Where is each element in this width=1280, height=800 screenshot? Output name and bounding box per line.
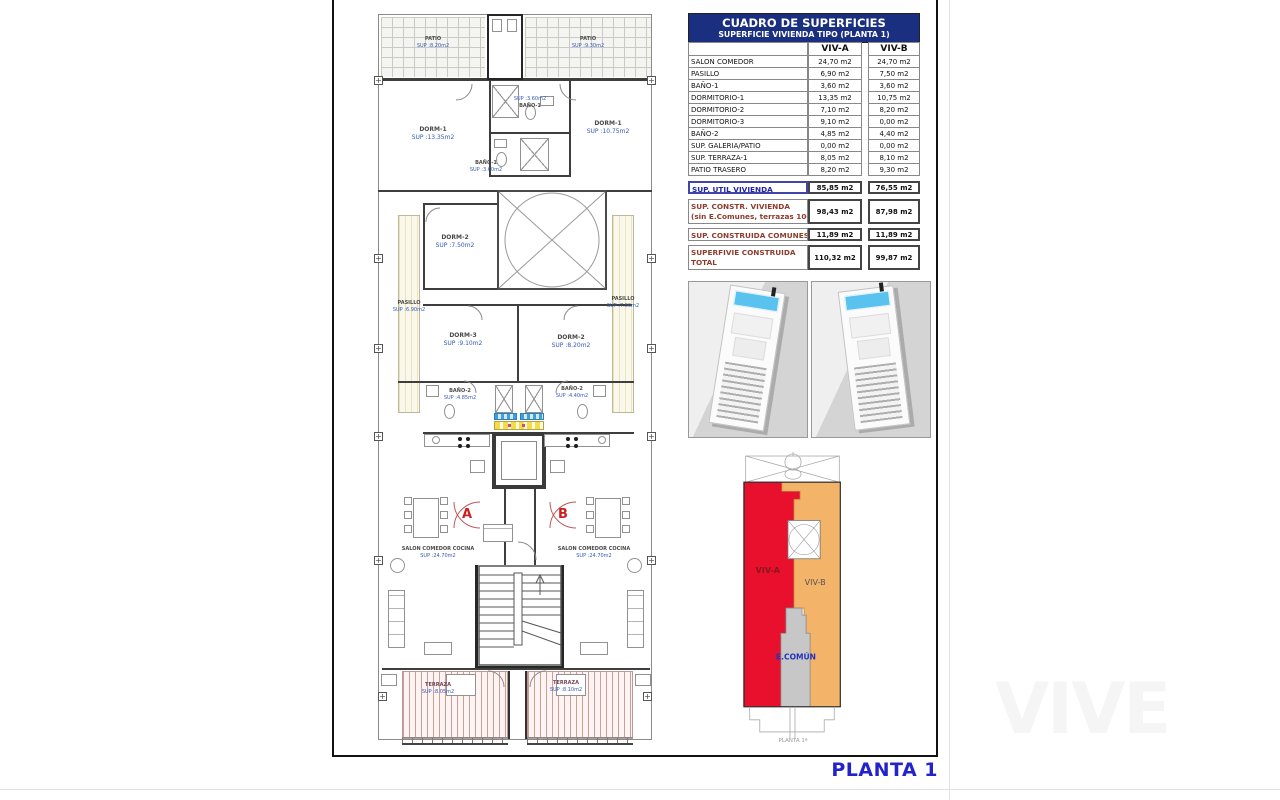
coffee-table	[580, 642, 608, 655]
summary-row-comunes: SUP. CONSTRUIDA COMUNES 11,89 m2 11,89 m…	[688, 228, 920, 241]
viv-a-label: VIV-A	[756, 566, 781, 575]
room-label-dorm2-a: DORM-2 SUP :7.50m2	[420, 234, 490, 250]
aerial-render-right	[811, 281, 931, 438]
surfaces-table: CUADRO DE SUPERFICIES SUPERFICIE VIVIEND…	[688, 13, 920, 270]
room-label-bano1-a: BAÑO-1 SUP :3.60m2	[446, 160, 526, 173]
room-label-dorm3-a: DORM-3 SUP :9.10m2	[428, 332, 498, 348]
kitchen-sink	[598, 436, 606, 444]
unit-a-letter: A	[462, 507, 472, 522]
comun-label: E.COMÚN	[776, 652, 816, 661]
table-row: PATIO TRASERO8,20 m29,30 m2	[688, 163, 920, 176]
duct	[507, 19, 517, 32]
summary-row-total: SUPERFIVIE CONSTRUIDATOTAL 110,32 m2 99,…	[688, 245, 920, 270]
diagram-caption: PLANTA 1ª	[778, 737, 807, 744]
hall-cabinet	[483, 524, 513, 542]
sofa-b	[627, 590, 644, 648]
utility-box	[635, 674, 651, 686]
building-3d	[708, 284, 785, 431]
balcony-floors	[854, 362, 903, 423]
room-label-pasillo-b: PASILLO SUP :7.50m2	[598, 296, 648, 309]
table-subtitle: SUPERFICIE VIVIENDA TIPO (PLANTA 1)	[689, 30, 919, 39]
sofa-a	[388, 590, 405, 648]
galeria-strip	[520, 413, 544, 420]
terrace-railing	[527, 737, 633, 745]
unit-color-diagram: VIV-A VIV-B E.COMÚN PLANTA 1ª	[742, 452, 846, 744]
surfaces-table-header: CUADRO DE SUPERFICIES SUPERFICIE VIVIEND…	[688, 13, 920, 43]
page-edge-line	[949, 0, 950, 800]
toilet	[577, 404, 588, 419]
page: VIVE PATIO SUP :8.20m2 PATIO SUP :9.30m2	[0, 0, 1280, 800]
shower	[495, 385, 513, 413]
elevator-cab	[501, 441, 537, 480]
room-label-salon-b: SALON COMEDOR COCINA SUP :24.70m2	[554, 546, 634, 559]
floor-plan: PATIO SUP :8.20m2 PATIO SUP :9.30m2 SUP …	[368, 8, 664, 748]
page-bottom-line	[0, 789, 1280, 790]
armchair	[390, 558, 405, 573]
room-label-patio-b: PATIO SUP :9.30m2	[543, 36, 633, 49]
diagram-elevator	[788, 520, 820, 558]
coffee-table	[424, 642, 452, 655]
dining-table-b	[595, 498, 621, 538]
chimney	[879, 282, 884, 291]
dining-table-a	[413, 498, 439, 538]
chimney	[771, 287, 776, 297]
room-label-patio-a: PATIO SUP :8.20m2	[388, 36, 478, 49]
room-label-salon-a: SALON COMEDOR COCINA SUP :24.70m2	[398, 546, 478, 559]
kitchen-sink	[432, 436, 440, 444]
summary-row-constr: SUP. CONSTR. VIVIENDA(sin E.Comunes, ter…	[688, 199, 920, 224]
toilet	[444, 404, 455, 419]
rooftop-pool	[844, 291, 890, 311]
watermark: VIVE	[995, 668, 1169, 750]
utility-box	[381, 674, 397, 686]
building-3d	[838, 285, 911, 431]
col-viv-b: VIV-B	[868, 42, 920, 56]
room-label-terraza-b: TERRAZA SUP :8.10m2	[534, 680, 598, 693]
aerial-render-left	[688, 281, 808, 438]
col-viv-a: VIV-A	[808, 42, 862, 56]
floor-title: PLANTA 1	[790, 759, 938, 781]
terrace-divider	[508, 671, 527, 739]
room-label-dorm2-b: DORM-2 SUP :8.20m2	[536, 334, 606, 350]
render-thumbnails	[688, 281, 931, 438]
room-label-dorm1-b: DORM-1 SUP :10.75m2	[573, 120, 643, 136]
summary-row-util: SUP. UTIL VIVIENDA 85,85 m2 76,55 m2	[688, 181, 920, 194]
room-label-bano2-a: BAÑO-2 SUP :4.85m2	[424, 388, 496, 401]
sink-unit	[470, 460, 485, 473]
stove-burners	[566, 437, 570, 441]
duct	[492, 19, 502, 32]
install-strip	[494, 421, 544, 430]
galeria-strip	[494, 413, 517, 420]
room-label-bano1-b: SUP :3.60m2 BAÑO-1	[490, 96, 570, 109]
room-label-dorm1-a: DORM-1 SUP :13.35m2	[398, 126, 468, 142]
table-title: CUADRO DE SUPERFICIES	[689, 16, 919, 30]
room-label-terraza-a: TERRAZA SUP :8.05m2	[406, 682, 470, 695]
unit-b-letter: B	[558, 507, 568, 522]
balcony-floors	[716, 362, 766, 424]
stove-burners	[458, 437, 462, 441]
room-label-pasillo-a: PASILLO SUP :6.90m2	[384, 300, 434, 313]
terrace-railing	[402, 737, 508, 745]
diagram-base-outline	[750, 707, 835, 739]
table-column-header: VIV-A VIV-B	[688, 42, 920, 56]
lightwell	[497, 190, 607, 290]
room-label-bano2-b: BAÑO-2 SUP :4.40m2	[536, 386, 608, 399]
armchair	[627, 558, 642, 573]
sink	[494, 139, 507, 148]
sink-unit	[550, 460, 565, 473]
viv-b-label: VIV-B	[805, 578, 826, 587]
